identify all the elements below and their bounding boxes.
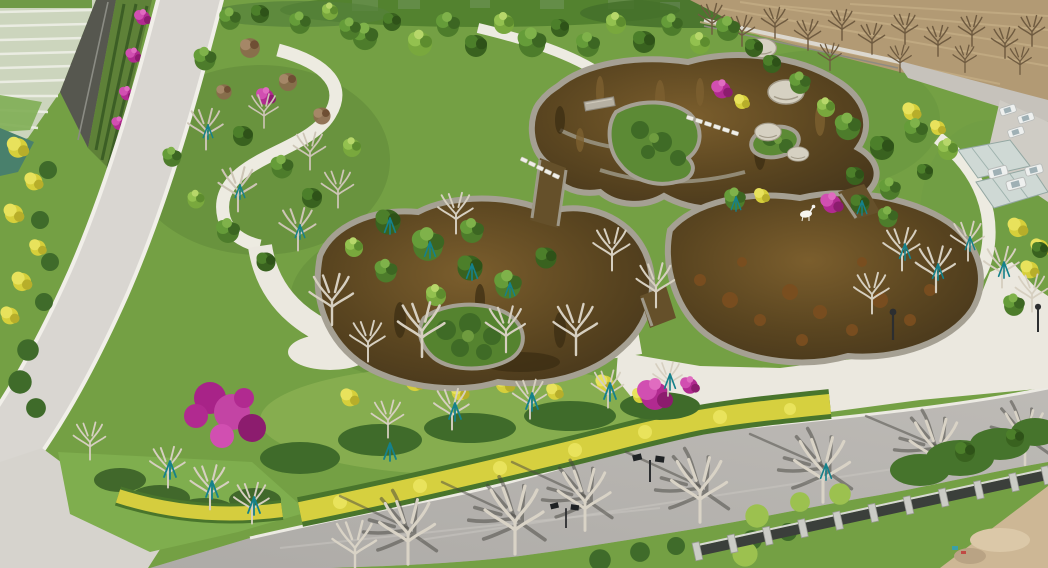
scene-canvas (0, 0, 1048, 568)
pond-lobe-east (668, 193, 981, 362)
pond-lobe-upper (532, 55, 877, 209)
aerial-park-photo (0, 0, 1048, 568)
